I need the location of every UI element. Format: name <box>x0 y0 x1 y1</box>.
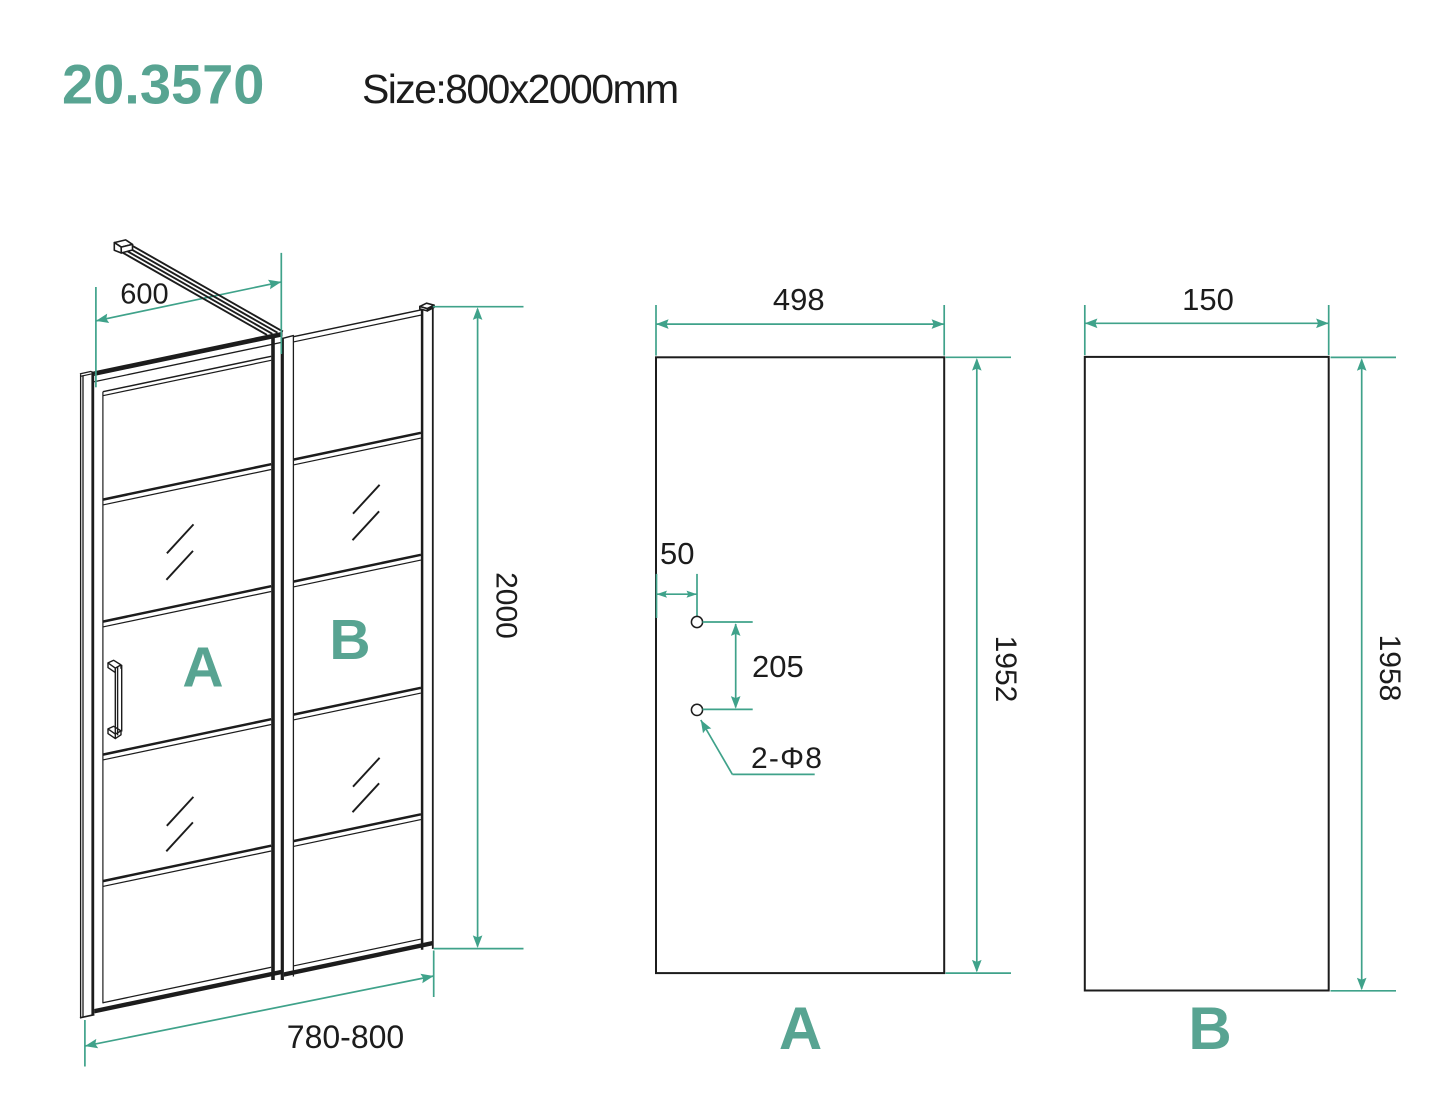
svg-text:A: A <box>182 636 223 700</box>
svg-text:205: 205 <box>752 649 804 684</box>
svg-text:600: 600 <box>120 279 168 311</box>
svg-text:498: 498 <box>773 282 825 317</box>
svg-text:B: B <box>329 608 370 672</box>
svg-text:Size:800x2000mm: Size:800x2000mm <box>362 66 678 112</box>
svg-text:2-Φ8: 2-Φ8 <box>751 742 823 775</box>
svg-text:2000: 2000 <box>490 572 523 639</box>
svg-text:50: 50 <box>660 536 694 571</box>
svg-text:A: A <box>779 995 822 1062</box>
svg-text:20.3570: 20.3570 <box>62 53 264 116</box>
svg-text:150: 150 <box>1182 282 1234 317</box>
svg-text:1958: 1958 <box>1373 635 1406 702</box>
svg-text:B: B <box>1188 995 1231 1062</box>
svg-text:1952: 1952 <box>989 636 1022 703</box>
svg-text:780-800: 780-800 <box>287 1019 404 1055</box>
